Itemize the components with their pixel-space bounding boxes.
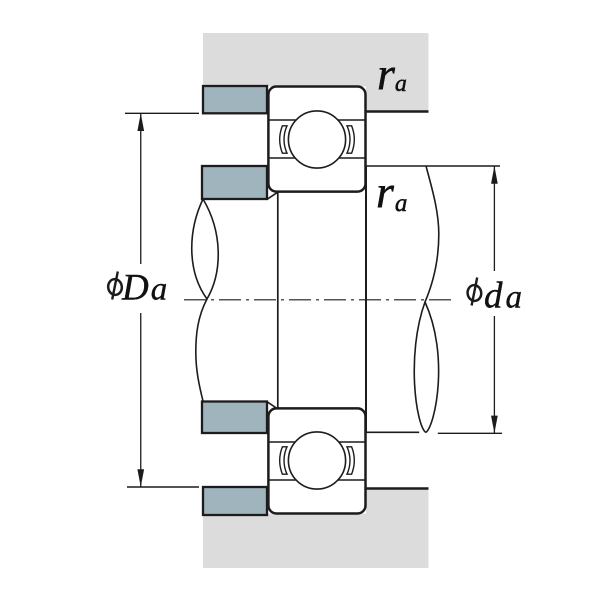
svg-text:Da: Da	[121, 268, 167, 309]
